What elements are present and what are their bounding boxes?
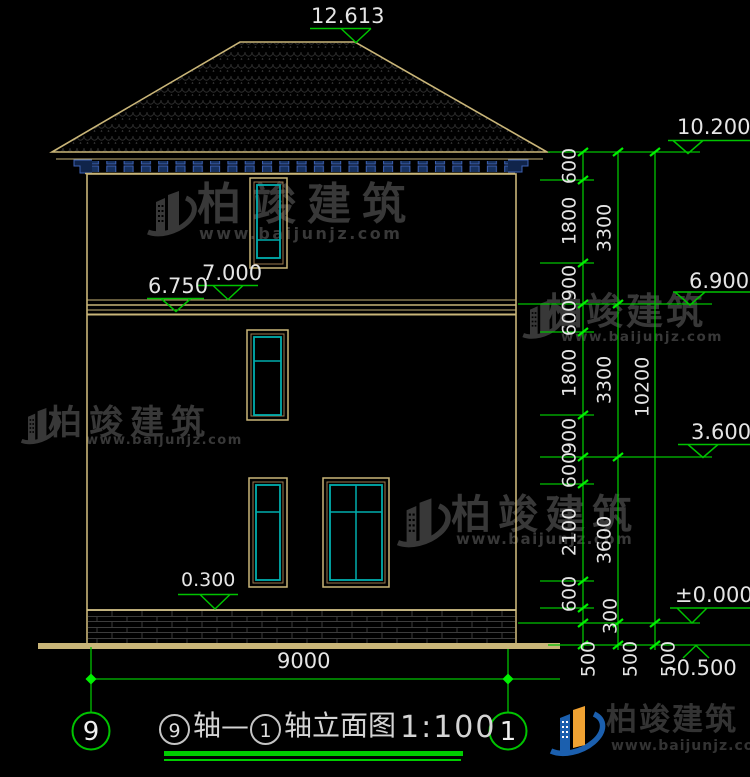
axis-number-left: 9 [83,719,100,745]
title-axis-circle-left: 9 [159,714,190,745]
dim-outer: 10200 [634,357,653,417]
dim-inner: 300 [602,598,621,634]
footer-brand: 柏竣建筑 [606,705,738,736]
axis-number-right: 1 [500,719,517,745]
level-6900: 6.900 [689,271,749,292]
page-title: 轴立面图 [284,712,396,740]
level-6750: 6.750 [148,276,208,297]
wall-outline [87,174,516,644]
dim-mid: 3300 [596,356,615,404]
window-floor1-narrow [249,478,287,587]
window-floor3 [250,178,287,268]
window-floor1-wide [323,478,389,587]
footer-logo-icon [551,706,603,753]
dim-inner: 900 [561,265,580,301]
footer-site: www.baijunjz.com [611,739,750,753]
dim-inner: 2100 [561,508,580,556]
level-3600: 3.600 [691,422,750,443]
dim-outer: 500 [660,641,679,677]
title-scale: 1:100 [400,713,496,743]
dim-inner: 1800 [561,349,580,397]
level-eave: 10.200 [677,117,750,138]
dim-inner: 500 [580,641,599,677]
dim-inner: 900 [561,418,580,454]
level-7000: 7.000 [202,263,262,284]
level-ridge: 12.613 [311,6,384,27]
watermark-logo-icon [22,191,563,546]
dim-mid: 3600 [596,516,615,564]
dim-inner: 600 [561,148,580,184]
dim-mid: 500 [622,641,641,677]
title-axis-circle-right: 1 [250,714,281,745]
dim-inner: 1800 [561,197,580,245]
overall-width-dim: 9000 [277,651,330,672]
level-zero: ±0.000 [675,585,750,606]
dim-mid: 3300 [596,204,615,252]
dim-inner: 600 [561,452,580,488]
roof-hip [52,42,547,152]
title-text-mid: 轴— [193,712,249,740]
plinth-bricks [38,610,560,649]
title-underline [164,751,463,761]
window-floor2 [247,330,288,420]
dim-inner: 600 [561,300,580,336]
level-0300: 0.300 [181,571,235,590]
dim-inner: 600 [561,576,580,612]
eave-band [56,159,543,174]
elevation-drawing-canvas: 柏竣建筑 www.baijunjz.com 柏竣建筑 www.baijunjz.… [0,0,750,777]
